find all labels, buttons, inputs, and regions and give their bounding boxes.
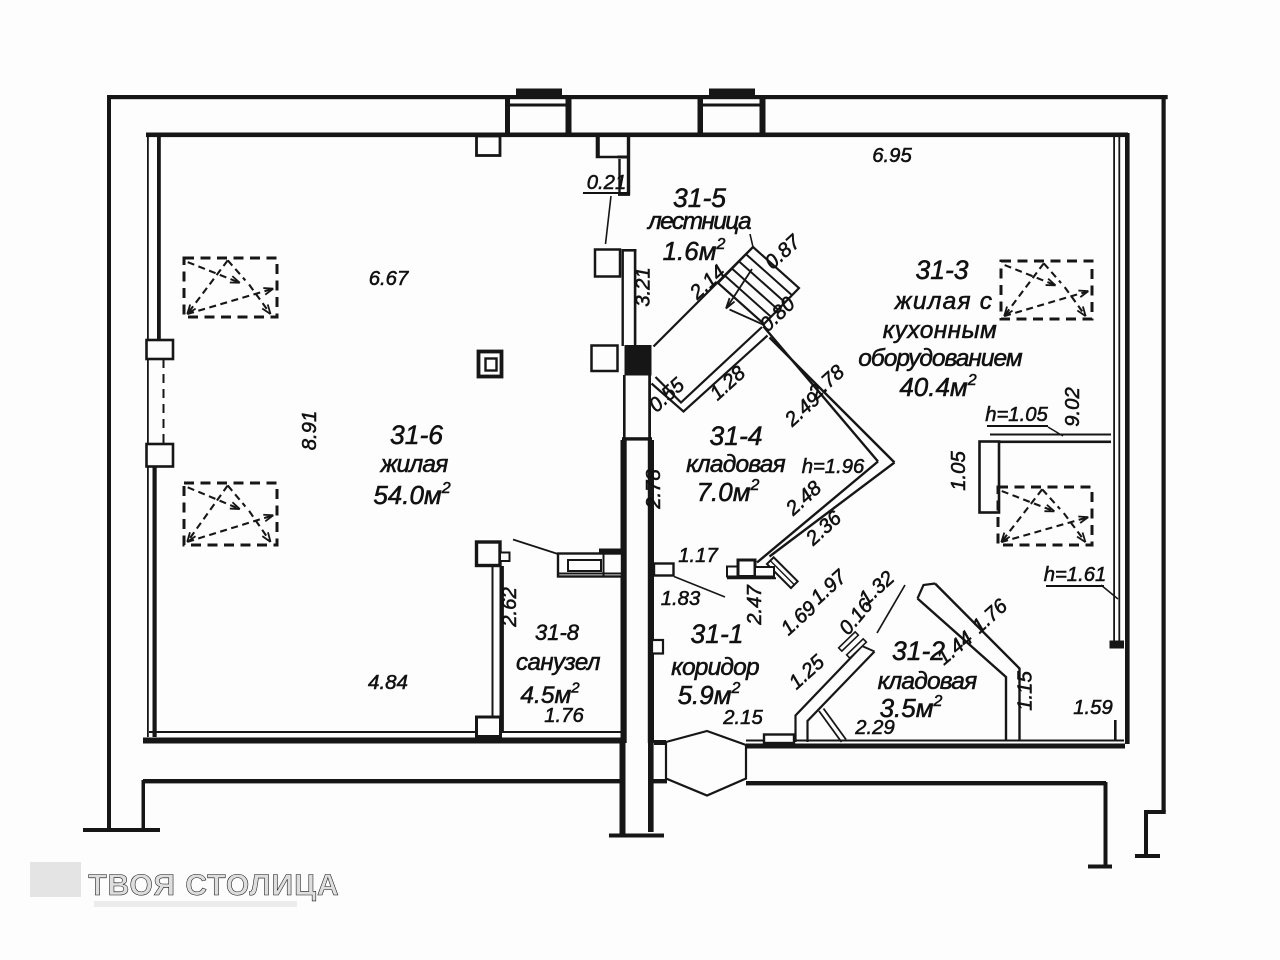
svg-text:31-3: 31-3 [915,255,968,285]
svg-text:31-4: 31-4 [709,421,762,451]
svg-text:жилая с: жилая с [894,288,993,315]
svg-text:0.21: 0.21 [587,172,626,194]
svg-text:31-8: 31-8 [535,620,580,645]
svg-text:5.9м2: 5.9м2 [678,680,741,710]
svg-text:h=1.61: h=1.61 [1044,564,1107,586]
svg-text:31-6: 31-6 [390,420,443,450]
svg-text:9.02: 9.02 [1062,387,1084,426]
svg-text:коридор: коридор [671,654,759,681]
svg-text:h=1.96: h=1.96 [802,456,865,478]
svg-text:1.76: 1.76 [544,705,584,727]
svg-text:2.62: 2.62 [499,587,521,627]
svg-text:2.47: 2.47 [744,585,766,626]
svg-text:1.59: 1.59 [1073,697,1112,719]
svg-text:санузел: санузел [516,649,601,676]
svg-text:кухонным: кухонным [883,317,997,344]
svg-text:лестница: лестница [646,208,751,235]
svg-text:7.0м2: 7.0м2 [697,477,760,507]
svg-text:4.84: 4.84 [368,671,408,694]
svg-text:3.21: 3.21 [633,267,655,306]
svg-text:40.4м2: 40.4м2 [899,372,976,402]
svg-text:1.17: 1.17 [678,545,718,567]
svg-text:2.15: 2.15 [722,707,763,729]
svg-text:1.83: 1.83 [661,588,701,610]
svg-text:жилая: жилая [379,451,448,478]
svg-text:8.91: 8.91 [299,411,321,450]
svg-text:оборудованием: оборудованием [858,345,1023,372]
svg-text:31-1: 31-1 [690,619,743,649]
svg-text:2.78: 2.78 [643,469,665,510]
svg-text:1.15: 1.15 [1015,671,1037,711]
svg-text:кладовая: кладовая [686,451,785,478]
svg-text:6.67: 6.67 [369,268,409,290]
svg-text:h=1.05: h=1.05 [985,404,1048,426]
svg-text:54.0м2: 54.0м2 [373,480,450,510]
svg-text:ТВОЯ СТОЛИЦА: ТВОЯ СТОЛИЦА [88,869,339,902]
svg-text:кладовая: кладовая [878,668,977,695]
svg-text:1.05: 1.05 [948,451,970,491]
svg-text:6.95: 6.95 [872,145,912,167]
svg-text:2.29: 2.29 [854,717,894,739]
svg-text:1.6м2: 1.6м2 [663,236,726,266]
